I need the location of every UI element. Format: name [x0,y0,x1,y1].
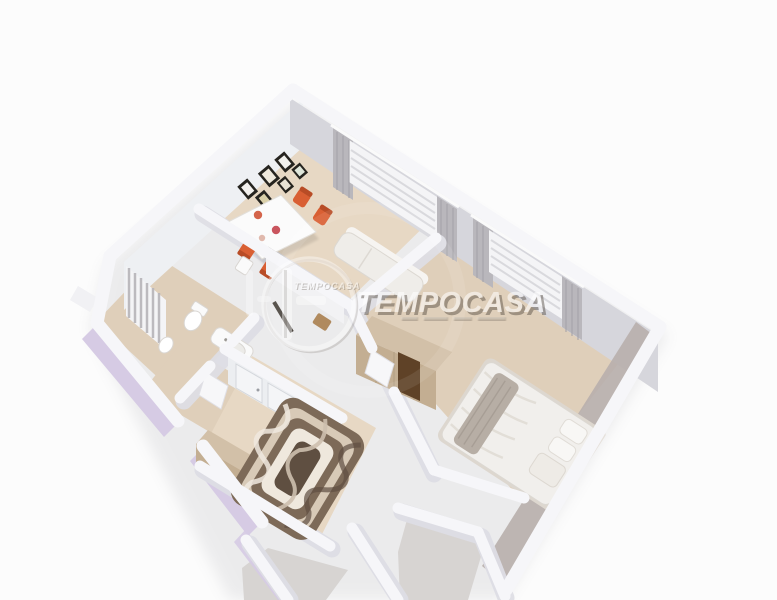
plate [254,211,262,219]
watermark-large-text: TEMPOCASA [356,287,546,319]
plate [272,226,280,234]
floor-plan-render: TEMPOCASA TEMPOCASA TEMPOCASA TEMPOCASA [0,0,777,600]
floor-plan-svg: TEMPOCASA TEMPOCASA TEMPOCASA TEMPOCASA [0,0,777,600]
watermark-small-text: TEMPOCASA [294,281,361,291]
plate [259,235,265,241]
